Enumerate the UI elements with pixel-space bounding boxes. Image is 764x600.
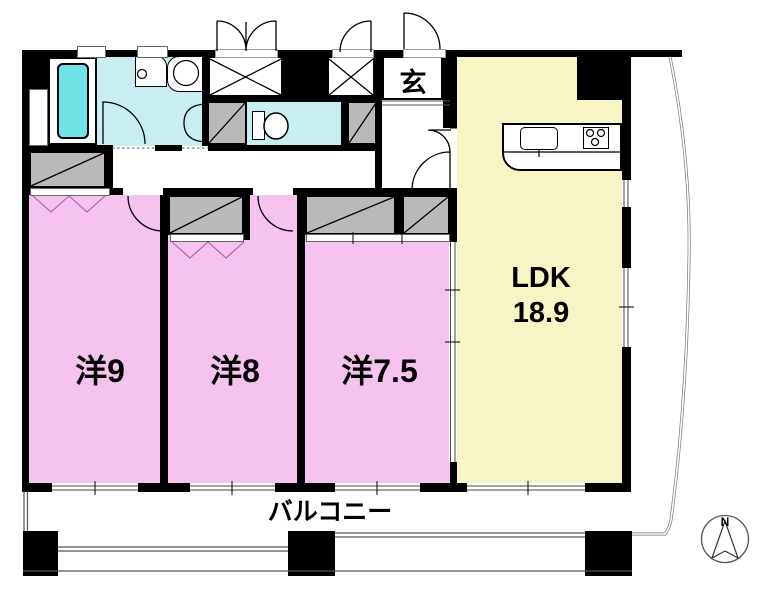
closet-western9 — [29, 151, 106, 188]
wall-bottom-3 — [275, 483, 335, 492]
entrance-step-lines — [382, 101, 450, 105]
room-label-ldk: LDK 18.9 — [465, 261, 617, 332]
vanity-basin — [167, 56, 206, 92]
wall-corridor-top-a — [155, 145, 182, 151]
room-label-entrance: 玄 — [383, 61, 443, 100]
wall-left — [22, 50, 29, 491]
wall-under-bath — [22, 145, 112, 152]
room-label-western-8: 洋8 — [170, 346, 300, 392]
wall-right — [622, 50, 631, 483]
ldk-door-arc-small — [428, 130, 451, 152]
closet-western7-5-right — [402, 195, 450, 235]
wall-right-of-genkan — [443, 50, 457, 128]
storage-right-of-toilet — [347, 101, 378, 145]
ldk-size: 18.9 — [465, 296, 617, 331]
wall-right-of-w8closet — [244, 195, 250, 240]
top-wall-vent-1 — [77, 46, 106, 58]
balcony-pillar-left — [23, 531, 58, 576]
closet-track-w75 — [306, 234, 450, 242]
kitchen-sink — [520, 127, 558, 150]
wall-bottom-1 — [22, 483, 52, 492]
wall-row-divider — [207, 96, 378, 102]
room-label-balcony: バルコニー — [225, 492, 435, 528]
ldk-door-arc-large — [412, 152, 450, 190]
closet-western7-5-left — [305, 195, 396, 235]
bath-alcove — [29, 89, 48, 146]
compass-north-label: N — [716, 515, 734, 529]
opening-double-door — [215, 49, 278, 58]
wall-toilet-right — [341, 96, 347, 151]
wall-under-pillar — [29, 56, 48, 89]
wall-w9-w8 — [160, 195, 168, 483]
closet-track-w8 — [170, 234, 244, 242]
bathtub — [57, 63, 89, 139]
opening-storage-door — [332, 49, 374, 58]
storage-door-arc — [340, 21, 371, 52]
room-western-9 — [29, 195, 160, 483]
room-label-western-9: 洋9 — [35, 346, 165, 392]
storage-left-of-toilet — [207, 101, 247, 145]
wall-corridor-bottom-c — [293, 188, 382, 195]
floor-plan: 玄 洋9 洋8 洋7.5 LDK 18.9 バルコニー N — [0, 0, 764, 600]
room-label-western-7-5: 洋7.5 — [307, 346, 452, 392]
wall-bottom-4 — [420, 483, 467, 492]
toilet-tank — [252, 111, 265, 140]
wall-bottom-5 — [585, 483, 631, 492]
wall-hall-ldk-lower — [450, 190, 457, 242]
double-door-arcs — [217, 21, 276, 51]
wall-corridor-bottom-d — [382, 188, 457, 195]
wall-between-shoeboxes — [283, 56, 327, 101]
closet-western8 — [168, 195, 244, 235]
closet-track-w9 — [30, 188, 110, 196]
shoe-box-x1 — [208, 56, 283, 97]
wall-corridor-bottom-b — [163, 188, 253, 195]
wall-corridor-top-b — [208, 145, 382, 151]
balcony-pillar-right — [585, 531, 632, 576]
wall-left-of-hall — [375, 56, 382, 195]
stove — [583, 127, 609, 149]
wall-w8-w75 — [297, 195, 305, 483]
pillar-ldk-top-right — [577, 53, 627, 100]
entrance-door-arc — [404, 13, 440, 49]
site-outline-curve — [632, 57, 689, 534]
ldk-name: LDK — [465, 261, 617, 296]
balcony-pillar-middle — [288, 531, 335, 576]
wall-w75-ldk-stub — [450, 462, 457, 483]
shoe-box-x2 — [327, 56, 375, 97]
wall-bottom-2 — [138, 483, 190, 492]
opening-entrance-door — [403, 49, 446, 58]
washing-machine-pan — [135, 56, 167, 87]
top-wall-vent-2 — [137, 46, 168, 58]
